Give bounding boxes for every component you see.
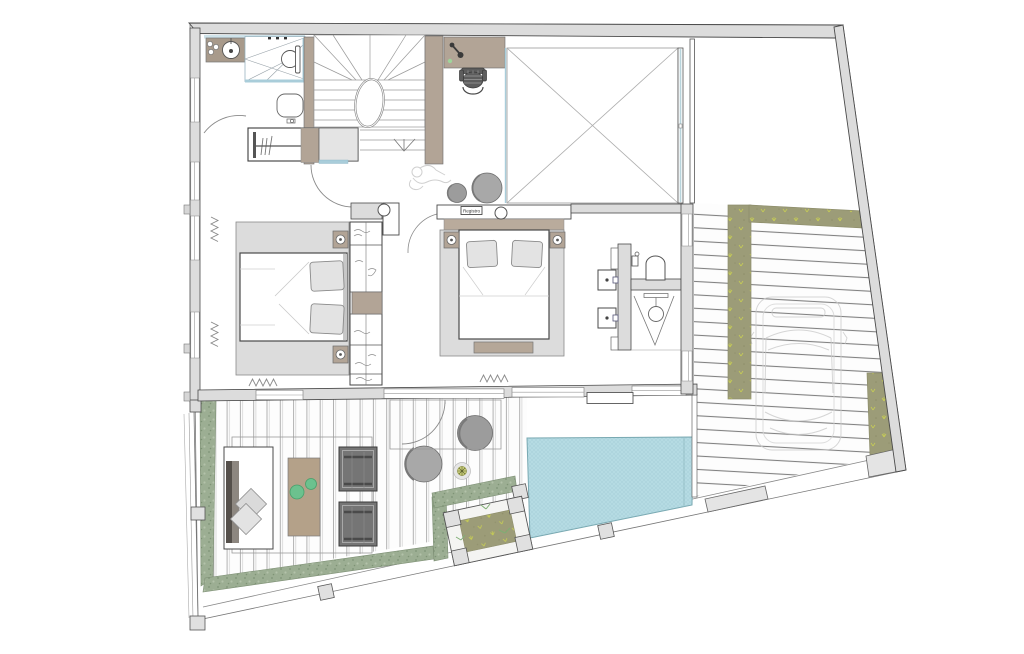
svg-text:Registro: Registro (463, 209, 481, 214)
